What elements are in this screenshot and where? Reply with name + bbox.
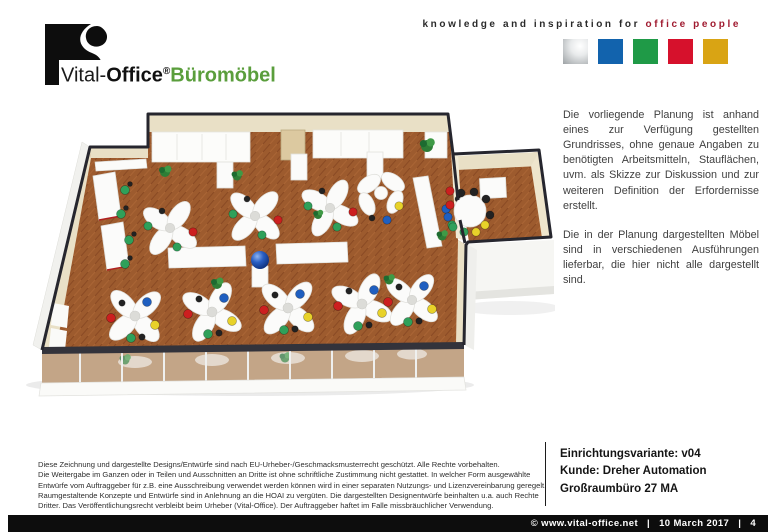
footer-bar: © www.vital-office.net | 10 March 2017 |… xyxy=(8,515,768,532)
footer-separator-2: | xyxy=(738,518,741,529)
footer-separator-1: | xyxy=(647,518,650,529)
planning-notes-paragraph-2: Die in der Planung dargestellten Möbel s… xyxy=(563,228,759,288)
presentation-slide: Vital-Office®Büromöbel knowledge and ins… xyxy=(0,0,768,532)
footer-date: 10 March 2017 xyxy=(659,518,729,529)
planning-notes: Die vorliegende Planung ist anhand eines… xyxy=(563,108,759,302)
project-variant: Einrichtungsvariante: v04 xyxy=(560,446,707,463)
brand-square-blue xyxy=(598,39,623,64)
brand-squares xyxy=(563,39,728,64)
logo-text-office: Office xyxy=(106,65,163,87)
legal-line-2: Die Weitergabe im Ganzen oder in Teilen … xyxy=(38,470,548,480)
project-info: Einrichtungsvariante: v04 Kunde: Dreher … xyxy=(560,446,707,498)
project-customer: Kunde: Dreher Automation xyxy=(560,463,707,480)
tagline-prefix: knowledge and inspiration for xyxy=(423,19,646,30)
legal-line-1: Diese Zeichnung und dargestellte Designs… xyxy=(38,460,548,470)
blue-sphere-sculpture xyxy=(251,251,269,269)
legal-line-4: Raumgestaltende Konzepte und Entwürfe si… xyxy=(38,491,548,501)
brand-square-silver xyxy=(563,39,588,64)
project-office-type: Großraumbüro 27 MA xyxy=(560,481,707,498)
vital-office-logo: Vital-Office®Büromöbel xyxy=(45,24,345,86)
project-info-divider xyxy=(545,442,546,506)
brand-square-red xyxy=(668,39,693,64)
logo-wordmark: Vital-Office®Büromöbel xyxy=(59,60,280,88)
footer-page-number: 4 xyxy=(750,518,756,529)
floor-plan-illustration xyxy=(25,88,555,398)
logo-text-bueromoebel: Büromöbel xyxy=(170,65,276,87)
brand-square-green xyxy=(633,39,658,64)
tagline-highlight: office people xyxy=(646,19,741,30)
planning-notes-paragraph-1: Die vorliegende Planung ist anhand eines… xyxy=(563,108,759,214)
glass-facade xyxy=(39,342,466,396)
legal-line-5: Dritter. Das Veröffentlichungsrecht verb… xyxy=(38,501,548,511)
tagline: knowledge and inspiration for office peo… xyxy=(423,19,742,30)
brand-square-gold xyxy=(703,39,728,64)
legal-line-3: Entwürfe vom Auftraggeber für z.B. eine … xyxy=(38,481,548,491)
logo-text-vital: Vital- xyxy=(61,65,106,87)
footer-copyright: © www.vital-office.net xyxy=(531,518,638,529)
legal-disclaimer: Diese Zeichnung und dargestellte Designs… xyxy=(38,460,548,511)
